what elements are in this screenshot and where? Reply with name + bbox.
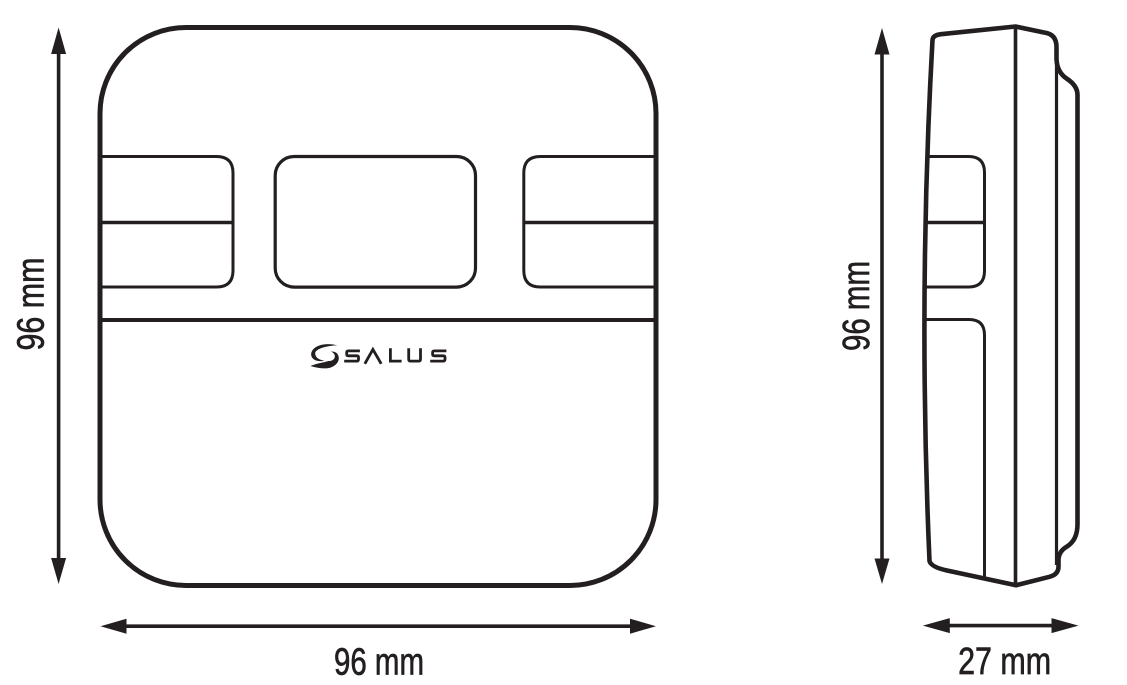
- svg-text:27 mm: 27 mm: [958, 640, 1051, 683]
- svg-text:96 mm: 96 mm: [835, 261, 878, 351]
- svg-text:96 mm: 96 mm: [334, 640, 424, 683]
- svg-text:96 mm: 96 mm: [9, 258, 52, 351]
